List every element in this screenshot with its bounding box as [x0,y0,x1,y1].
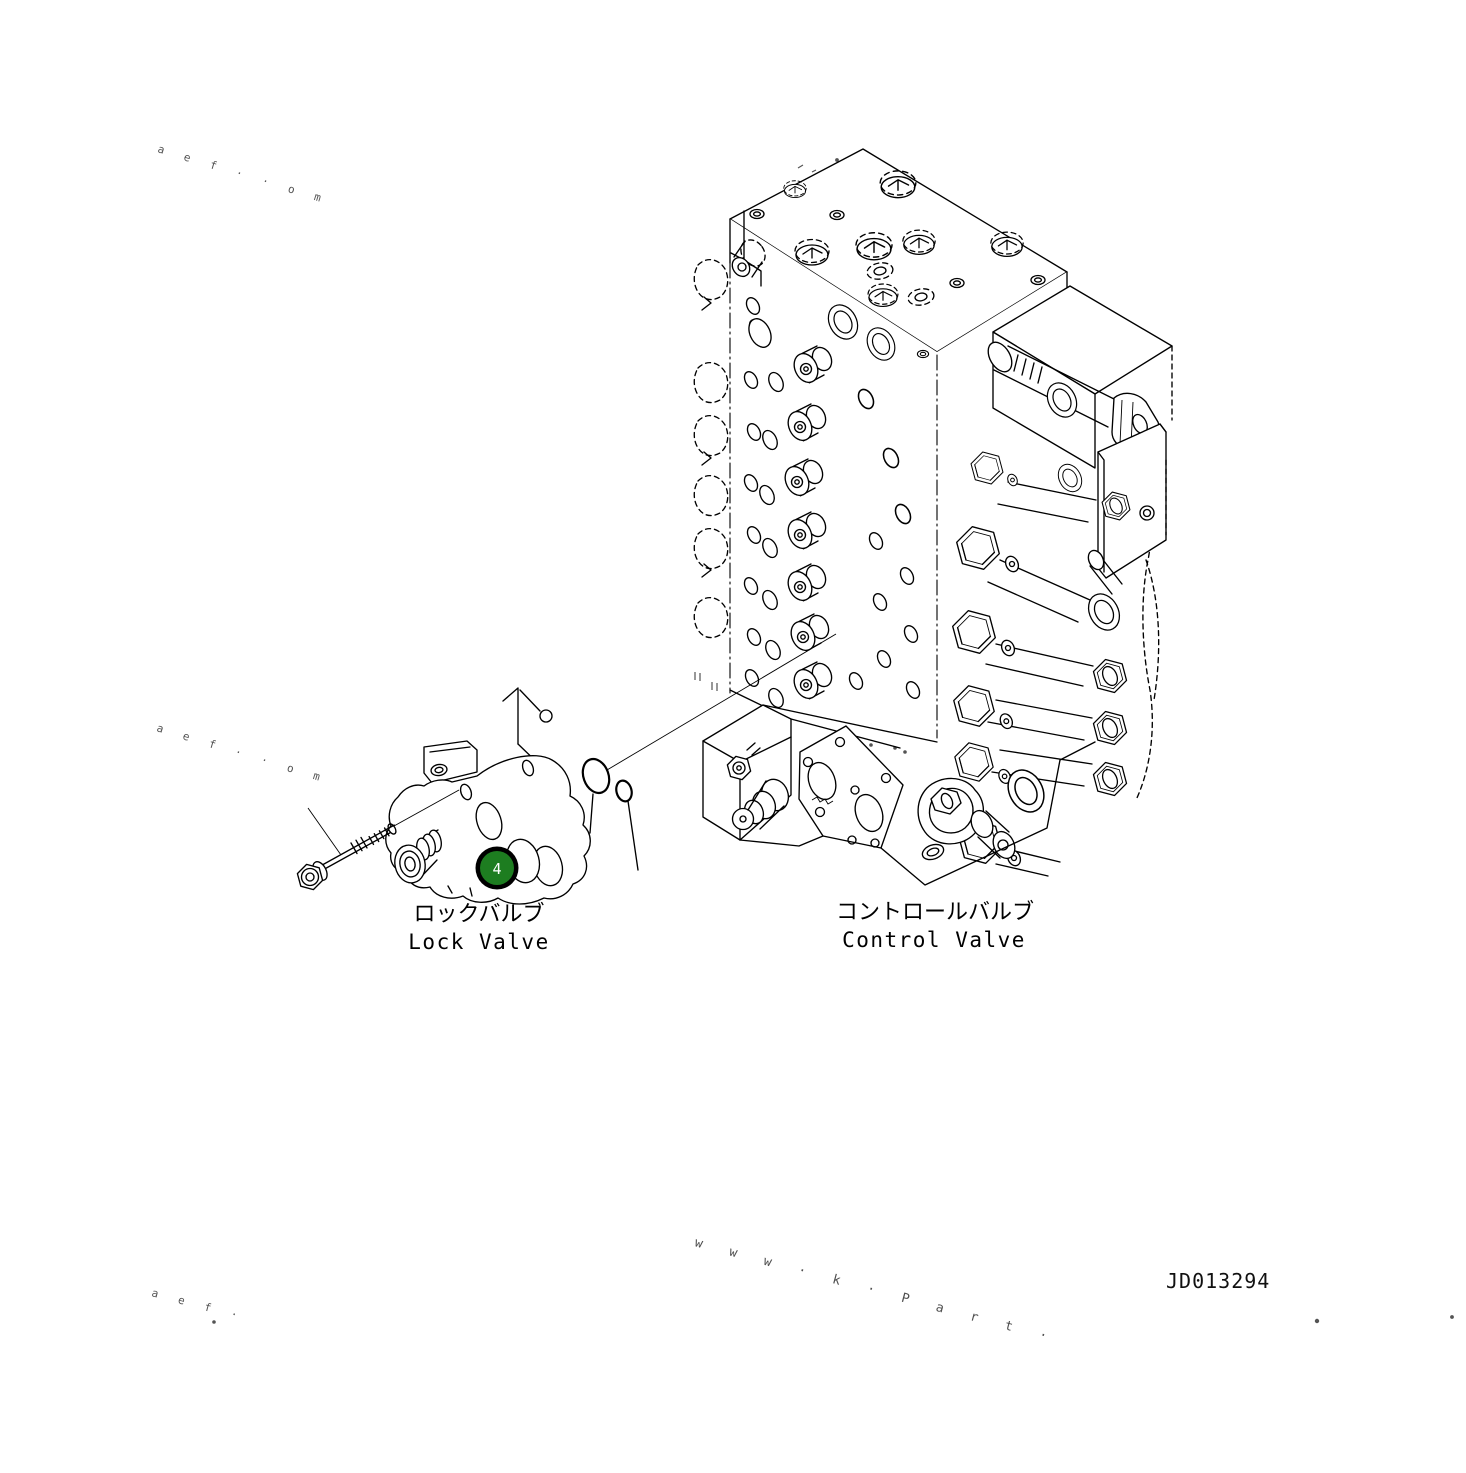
o-ring-small [614,779,638,870]
parts-diagram: a e f · · o m a e f · · o m a e f · w w … [0,0,1466,1473]
drawing-number: JD013294 [1166,1269,1270,1293]
callout-number: 4 [492,860,501,878]
labels: ロックバルブ Lock Valve コントロールバルブ Control Valv… [408,900,1270,1293]
lock-valve-label-en: Lock Valve [408,930,549,954]
top-ring-hole [830,211,844,220]
watermark-top-left: a e f · · o m [156,142,329,206]
hex-port-nut [1093,762,1126,795]
solenoid-hex-head [957,527,1021,574]
parts-diagram-page: a e f · · o m a e f · · o m a e f · w w … [0,0,1466,1473]
top-ring-hole [1031,276,1045,285]
solenoid-hex-head [954,686,1015,731]
top-ring-hole [917,350,928,357]
watermark-bottom-center: w w w · k · P a r t · [693,1235,1059,1346]
top-ring-hole [950,279,964,288]
flange-ring [1054,460,1087,496]
leader-line-to-bolt [308,808,341,855]
top-ring-hole [750,210,764,219]
watermark-bottom-left: a e f · [150,1286,245,1323]
control-valve-label-jp: コントロールバルブ [836,900,1034,925]
control-valve-label-en: Control Valve [842,928,1026,952]
solenoid-hex-head [953,611,1017,658]
watermark-mid-left: a e f · · o m [155,721,328,785]
port-ring [1082,589,1125,636]
lock-valve-label-jp: ロックバルブ [414,902,545,927]
callout-4[interactable]: 4 [476,847,519,890]
control-valve-drawing [694,149,1172,885]
solenoid-hex-head [955,743,1013,785]
spring-pin [503,688,552,744]
hex-port-nut [1093,659,1126,692]
left-cut-fittings [694,260,727,638]
hex-port-nut [1093,711,1126,744]
